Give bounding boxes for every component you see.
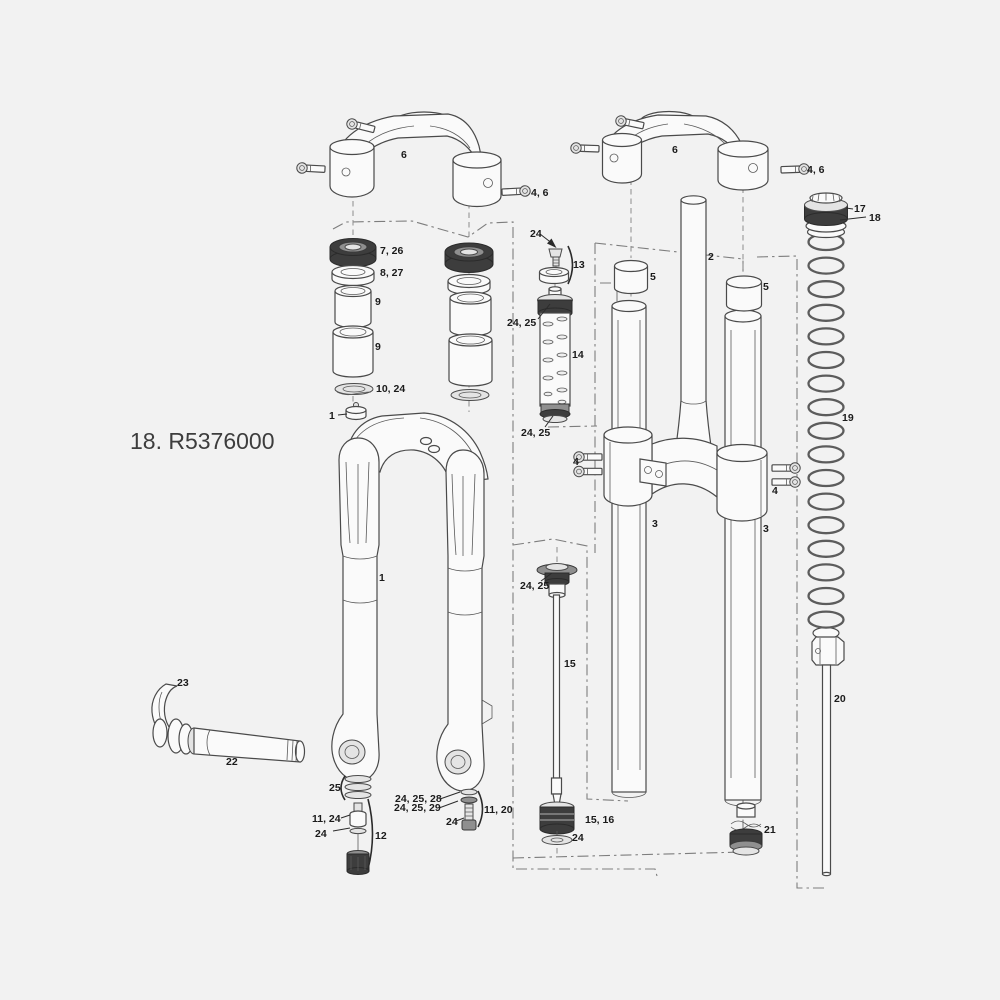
lower-legs-casting xyxy=(332,413,492,791)
spacer-left xyxy=(615,261,648,294)
label-foot-bolt: 24 xyxy=(446,816,458,828)
crown-bolt xyxy=(297,163,326,175)
foot-bolt-assembly xyxy=(461,789,477,830)
spring-top-cap xyxy=(805,193,848,238)
label-air-piston: 15, 16 xyxy=(585,814,614,826)
label-washer-stack: 25 xyxy=(329,782,341,794)
label-bumper: 1 xyxy=(329,410,335,422)
label-damper-top-seal: 24, 25 xyxy=(507,317,536,329)
label-spring-top-cap: 17 xyxy=(854,203,866,215)
spacer-right xyxy=(727,276,762,311)
label-damper-bottom-seal: 24, 25 xyxy=(521,427,550,439)
upper-crown-right xyxy=(571,112,810,191)
lower-crown xyxy=(574,427,800,521)
rebound-assembly xyxy=(345,776,371,875)
label-crush-washer: 10, 24 xyxy=(376,383,405,395)
label-stanchion-left: 3 xyxy=(652,518,658,530)
label-thru-axle: 22 xyxy=(226,756,238,768)
label-bushing-upper: 9 xyxy=(375,296,381,308)
air-shaft xyxy=(537,564,577,806)
label-crown-right-bolt: 4, 6 xyxy=(807,164,825,176)
label-axle-lever: 23 xyxy=(177,677,189,689)
bushing-upper xyxy=(335,286,371,328)
bushing-lower xyxy=(333,326,373,377)
diagram-canvas: 6 4, 6 6 4, 6 17 18 7, 26 8, 27 9 9 10, … xyxy=(0,0,1000,1000)
steerer-tube xyxy=(674,196,713,460)
label-crown-left-bolt: 4, 6 xyxy=(531,187,549,199)
label-crown-left: 6 xyxy=(401,149,407,161)
figure-code: 18. R5376000 xyxy=(130,428,275,454)
label-steerer: 2 xyxy=(708,251,714,263)
seal-stack-left xyxy=(330,239,376,395)
label-spring-seal-head: 21 xyxy=(764,824,776,836)
label-spacer-right: 5 xyxy=(763,281,769,293)
label-crown-bolts-right: 4 xyxy=(772,485,778,497)
stanchion-right xyxy=(725,310,761,806)
crown-bolt xyxy=(571,143,600,154)
label-bushing-lower: 9 xyxy=(375,341,381,353)
label-foot-bolt-assembly: 11, 20 xyxy=(484,804,513,816)
dust-seal xyxy=(330,239,376,268)
crown-bolt xyxy=(772,463,800,473)
crown-bolt xyxy=(502,186,531,198)
exploded-fork-diagram: 6 4, 6 6 4, 6 17 18 7, 26 8, 27 9 9 10, … xyxy=(0,0,1000,1000)
spring-seal-head xyxy=(730,803,762,855)
label-rebound-washer: 24 xyxy=(315,828,327,840)
upper-crown-left xyxy=(297,112,531,207)
label-foam-ring: 8, 27 xyxy=(380,267,404,279)
leader-lines xyxy=(333,208,866,869)
crush-washer xyxy=(335,384,373,395)
label-spring-cap-rings: 18 xyxy=(869,212,881,224)
coil-spring xyxy=(809,234,844,628)
label-coil-spring: 19 xyxy=(842,412,854,424)
label-air-piston-washer: 24 xyxy=(572,832,584,844)
label-damper-ring: 13 xyxy=(573,259,585,271)
label-stanchion-right: 3 xyxy=(763,523,769,535)
seal-stack-middle xyxy=(445,243,493,401)
spring-shaft xyxy=(812,628,844,876)
label-damper-bolt: 24 xyxy=(530,228,542,240)
lower-leg-bumper xyxy=(346,403,366,420)
label-footnut-washer-b: 24, 25, 29 xyxy=(394,802,441,814)
label-crown-right: 6 xyxy=(672,144,678,156)
label-damper-body: 14 xyxy=(572,349,584,361)
label-air-shaft: 15 xyxy=(564,658,576,670)
air-piston xyxy=(540,802,574,845)
label-lower-legs: 1 xyxy=(379,572,385,584)
label-rebound-adjuster: 11, 24 xyxy=(312,813,341,825)
label-dust-seal: 7, 26 xyxy=(380,245,404,257)
crown-bolt xyxy=(781,164,810,175)
label-spring-shaft: 20 xyxy=(834,693,846,705)
label-spacer-left: 5 xyxy=(650,271,656,283)
damper-cartridge xyxy=(538,249,573,423)
stanchion-left xyxy=(612,301,646,798)
label-crown-bolts-left: 4 xyxy=(573,456,579,468)
label-rebound-assembly: 12 xyxy=(375,830,387,842)
label-air-shaft-seal: 24, 25 xyxy=(520,580,549,592)
foam-ring xyxy=(332,266,374,286)
